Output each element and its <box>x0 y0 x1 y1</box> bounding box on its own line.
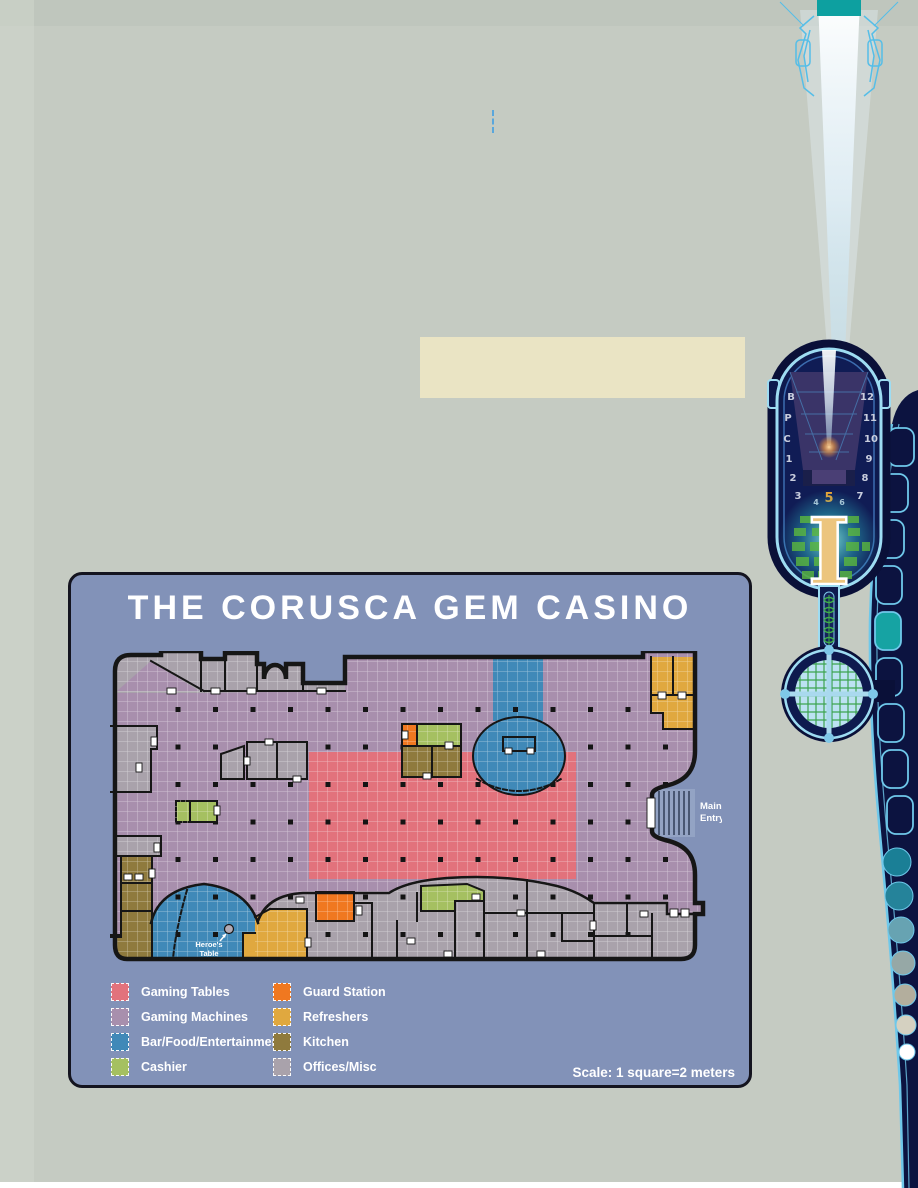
legend-item: Offices/Misc <box>273 1058 377 1076</box>
svg-text:P: P <box>784 413 791 424</box>
legend-item: Kitchen <box>273 1033 349 1051</box>
svg-text:Table: Table <box>199 949 218 958</box>
map-title: THE CORUSCA GEM CASINO <box>71 589 749 628</box>
legend-swatch-offices <box>273 1058 291 1076</box>
svg-text:9: 9 <box>866 454 873 465</box>
casino-floor-plan: Main Entry Heroe's Table <box>107 651 722 966</box>
dashed-line-artifact <box>492 110 494 133</box>
legend-item: Refreshers <box>273 1008 368 1026</box>
svg-text:B: B <box>787 392 795 403</box>
svg-text:11: 11 <box>863 413 877 424</box>
legend-item: Cashier <box>111 1058 187 1076</box>
page-left-shading <box>0 0 34 1188</box>
svg-text:12: 12 <box>860 392 874 403</box>
svg-text:8: 8 <box>862 473 869 484</box>
svg-text:Entry: Entry <box>700 813 722 824</box>
legend-item: Gaming Machines <box>111 1008 248 1026</box>
legend-swatch-refreshers <box>273 1008 291 1026</box>
svg-text:1: 1 <box>786 454 793 465</box>
book-page: { "colors":{ "page-bg":"#c5cbc2","panel-… <box>0 0 918 1188</box>
svg-text:2: 2 <box>790 473 797 484</box>
beige-sidebar-box <box>420 337 745 398</box>
scale-label: Scale: 1 square=2 meters <box>573 1065 735 1080</box>
legend-swatch-cashier <box>111 1058 129 1076</box>
legend-swatch-kitchen <box>273 1033 291 1051</box>
heroes-table-label: Heroe's <box>195 940 222 949</box>
legend-item: Guard Station <box>273 983 386 1001</box>
svg-text:10: 10 <box>864 434 878 445</box>
main-entry-label: Main <box>700 801 722 812</box>
pillar-dots <box>153 701 647 949</box>
turbolift-pod: B P C 1 2 3 12 11 10 9 8 7 4 5 6 <box>768 344 890 606</box>
legend-swatch-bar <box>111 1033 129 1051</box>
turbolift-tower-artwork: B P C 1 2 3 12 11 10 9 8 7 4 5 6 <box>760 0 918 1188</box>
tower-teal-cap <box>817 0 861 16</box>
pod-stem <box>819 586 839 650</box>
legend-item: Bar/Food/Entertainment <box>111 1033 283 1051</box>
heroes-table-marker <box>225 925 234 934</box>
legend-swatch-gaming-machines <box>111 1008 129 1026</box>
map-panel: THE CORUSCA GEM CASINO <box>68 572 752 1088</box>
spotlight-beam <box>800 0 878 360</box>
legend-item: Gaming Tables <box>111 983 230 1001</box>
svg-text:C: C <box>783 434 790 445</box>
legend-swatch-gaming-tables <box>111 983 129 1001</box>
main-entry-steps <box>653 789 695 837</box>
legend-swatch-guard-station <box>273 983 291 1001</box>
